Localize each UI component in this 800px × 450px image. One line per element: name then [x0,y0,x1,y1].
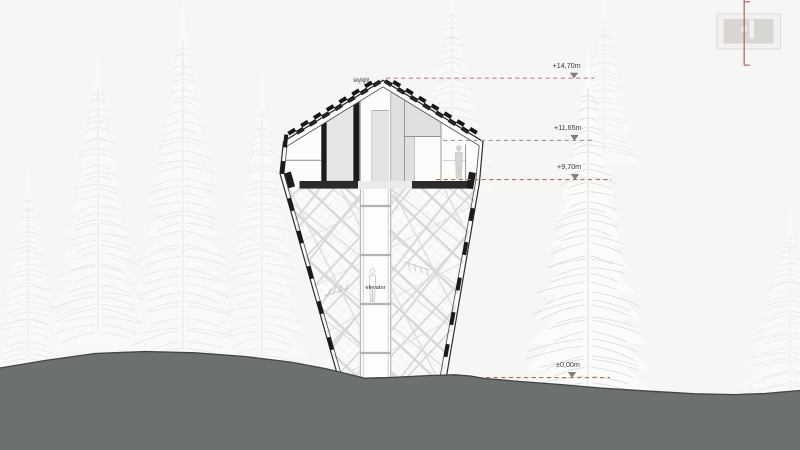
svg-text:+14,70m: +14,70m [553,61,581,70]
svg-text:±0,00m: ±0,00m [556,360,580,369]
svg-text:skylight: skylight [353,77,370,84]
svg-text:elevator: elevator [366,285,386,291]
svg-text:+11,65m: +11,65m [554,123,582,132]
svg-text:+9,70m: +9,70m [557,162,581,171]
